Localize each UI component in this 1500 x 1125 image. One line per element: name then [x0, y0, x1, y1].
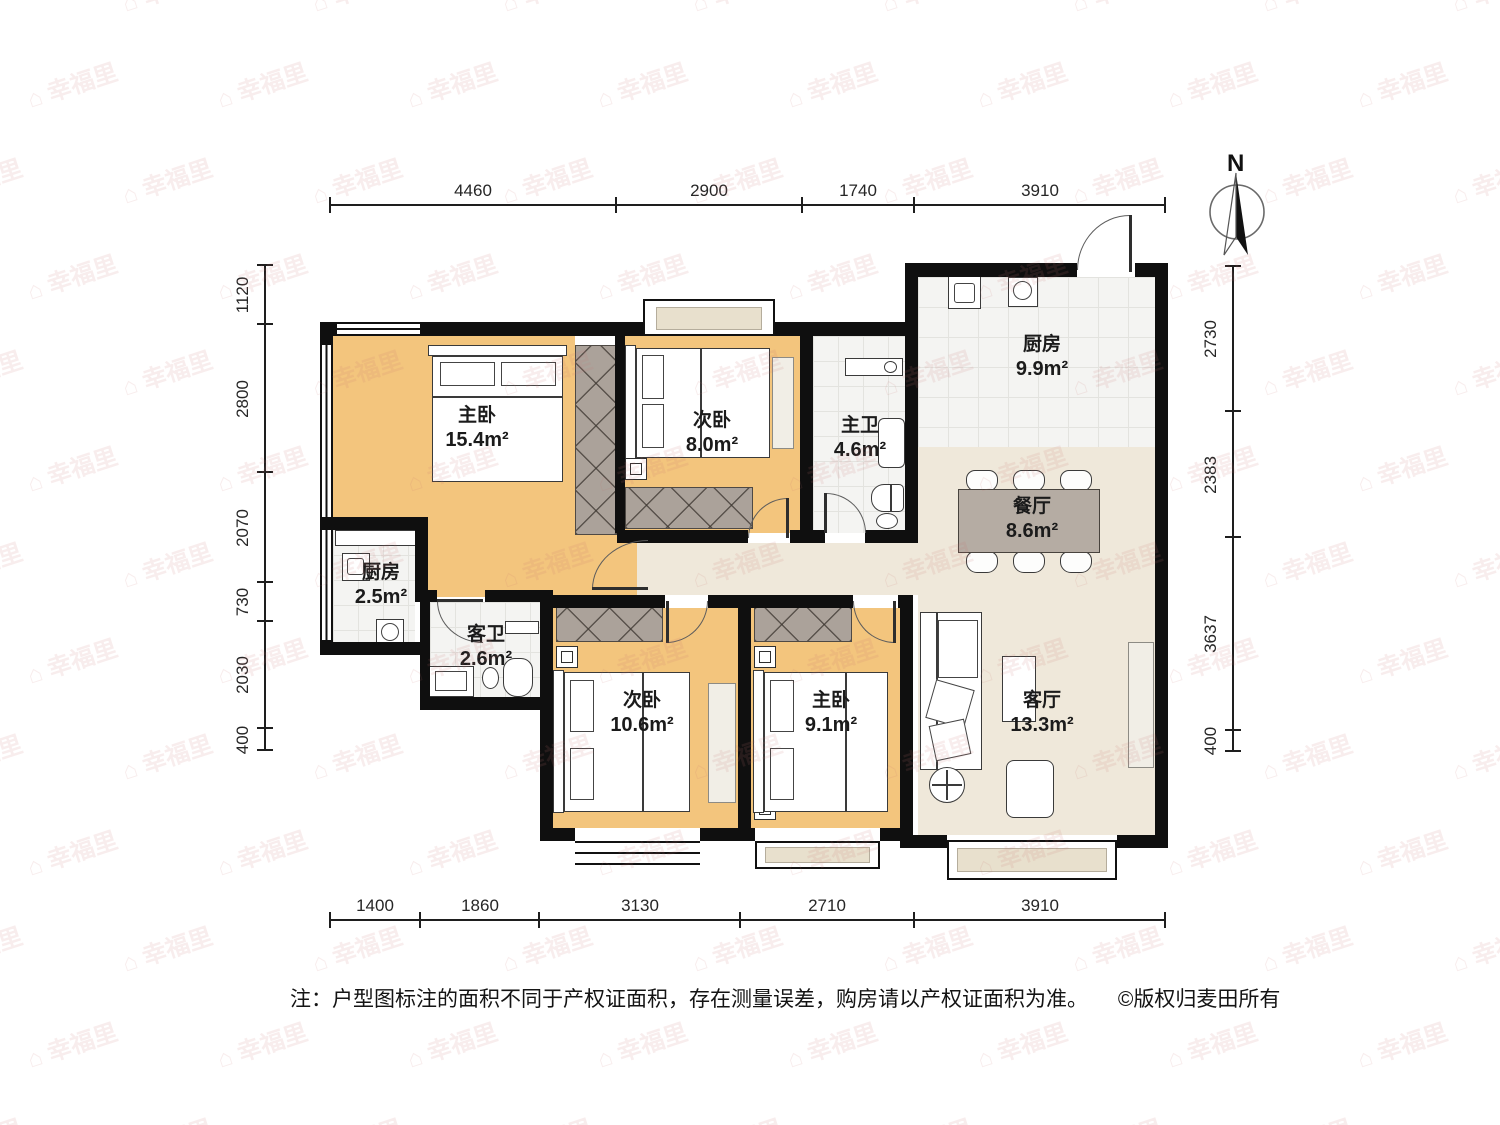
dim-label: 2383: [1201, 440, 1221, 510]
watermark: ⌂ 幸福里: [592, 52, 691, 114]
watermark: ⌂ 幸福里: [117, 916, 216, 978]
dim-label: 1740: [818, 181, 898, 201]
wall: [905, 336, 918, 543]
wall: [898, 595, 913, 608]
lamp-cross: [946, 770, 948, 800]
watermark: ⌂ 幸福里: [497, 148, 596, 210]
door-leaf: [666, 601, 669, 643]
watermark: ⌂ 幸福里: [1257, 148, 1356, 210]
washer-drum: [381, 623, 399, 641]
watermark: ⌂ 幸福里: [1257, 532, 1356, 594]
room-name: 客卫: [460, 623, 512, 646]
room-name: 厨房: [1016, 333, 1068, 356]
watermark: ⌂ 幸福里: [687, 0, 786, 19]
dim-label: 1120: [233, 260, 253, 330]
dim-tick: [257, 323, 273, 325]
wardrobe: [575, 345, 617, 535]
wall: [333, 517, 428, 530]
watermark: ⌂ 幸福里: [1067, 916, 1166, 978]
watermark: ⌂ 幸福里: [22, 52, 121, 114]
door-leaf: [437, 599, 483, 602]
wall: [428, 590, 437, 602]
window: [320, 530, 333, 640]
watermark: ⌂ 幸福里: [592, 244, 691, 306]
floor-corridor: [637, 543, 918, 595]
wall: [540, 828, 575, 841]
door-leaf: [786, 498, 789, 538]
watermark: ⌂ 幸福里: [1352, 1012, 1451, 1074]
chair-icon: [1060, 551, 1092, 573]
window-sill: [656, 307, 762, 330]
door-leaf: [592, 587, 648, 590]
dim-tick: [615, 197, 617, 213]
room-label-kitchen-small: 厨房 2.5m²: [355, 561, 407, 610]
pillow: [570, 680, 594, 732]
ac-unit-icon: [556, 646, 578, 668]
watermark: ⌂ 幸福里: [1352, 628, 1451, 690]
door-leaf: [893, 601, 896, 643]
sink-icon: [884, 361, 897, 373]
dim-tick: [801, 197, 803, 213]
room-label-bath-guest: 客卫 2.6m²: [460, 623, 512, 672]
sofa-cushion: [938, 620, 978, 678]
watermark: ⌂ 幸福里: [307, 148, 406, 210]
wardrobe: [556, 602, 663, 642]
bed-headboard: [753, 670, 764, 813]
wall: [415, 517, 428, 602]
watermark: ⌂ 幸福里: [117, 0, 216, 19]
room-label-bath-master: 主卫 4.6m²: [834, 414, 886, 463]
room-name: 主卧: [445, 404, 508, 427]
bed-headboard: [625, 345, 636, 460]
watermark: ⌂ 幸福里: [877, 0, 976, 19]
pillow: [642, 355, 664, 399]
watermark: ⌂ 幸福里: [117, 724, 216, 786]
watermark: ⌂ 幸福里: [687, 148, 786, 210]
watermark: ⌂ 幸福里: [782, 244, 881, 306]
dimension-line: [330, 204, 1165, 206]
watermark: ⌂ 幸福里: [1447, 1108, 1500, 1125]
wall: [708, 595, 853, 608]
watermark: ⌂ 幸福里: [497, 916, 596, 978]
dim-label: 1400: [335, 896, 415, 916]
watermark: ⌂ 幸福里: [1257, 724, 1356, 786]
dim-tick: [1225, 410, 1241, 412]
ac-unit-icon: [754, 646, 776, 668]
wall: [553, 595, 665, 608]
watermark: ⌂ 幸福里: [402, 244, 501, 306]
dim-tick: [1225, 536, 1241, 538]
wall: [913, 835, 947, 848]
sofa-pillow: [929, 719, 972, 762]
room-area: 10.6m²: [610, 712, 673, 738]
dimension-line: [1232, 266, 1234, 751]
bed-headboard: [553, 670, 564, 813]
dim-label: 2030: [233, 640, 253, 710]
bed-headboard: [428, 345, 567, 356]
blanket-line: [432, 396, 563, 398]
watermark: ⌂ 幸福里: [1352, 436, 1451, 498]
window: [575, 841, 700, 865]
wall: [420, 322, 643, 336]
dim-tick: [257, 727, 273, 729]
watermark: ⌂ 幸福里: [0, 1108, 26, 1125]
ac-unit-icon: [625, 458, 647, 480]
dim-label: 730: [233, 567, 253, 637]
room-label-master1: 主卧 15.4m²: [445, 404, 508, 453]
dim-label: 2900: [669, 181, 749, 201]
room-label-bed2: 次卧 8.0m²: [686, 409, 738, 458]
side-panel: [708, 683, 736, 803]
wardrobe: [754, 602, 852, 642]
room-area: 2.6m²: [460, 646, 512, 672]
watermark: ⌂ 幸福里: [212, 1012, 311, 1074]
room-area: 13.3m²: [1010, 712, 1073, 738]
dim-tick: [257, 471, 273, 473]
room-label-dining: 餐厅 8.6m²: [1006, 495, 1058, 544]
watermark: ⌂ 幸福里: [0, 532, 26, 594]
dim-tick: [1225, 750, 1241, 752]
watermark: ⌂ 幸福里: [497, 1108, 596, 1125]
watermark: ⌂ 幸福里: [117, 1108, 216, 1125]
watermark: ⌂ 幸福里: [307, 0, 406, 19]
footer-note: 注：户型图标注的面积不同于产权证面积，存在测量误差，购房请以产权证面积为准。 ©…: [290, 983, 1280, 1013]
door-leaf: [824, 493, 827, 533]
dim-tick: [419, 912, 421, 928]
chair-icon: [966, 551, 998, 573]
door-arc: [1077, 215, 1130, 270]
watermark: ⌂ 幸福里: [1352, 52, 1451, 114]
dim-label: 3637: [1201, 599, 1221, 669]
watermark: ⌂ 幸福里: [1352, 244, 1451, 306]
watermark: ⌂ 幸福里: [0, 916, 26, 978]
watermark: ⌂ 幸福里: [212, 628, 311, 690]
dim-tick: [739, 912, 741, 928]
chair-icon: [1013, 551, 1045, 573]
dim-tick: [257, 620, 273, 622]
dim-tick: [257, 749, 273, 751]
room-area: 9.9m²: [1016, 356, 1068, 382]
room-area: 8.6m²: [1006, 518, 1058, 544]
watermark: ⌂ 幸福里: [212, 820, 311, 882]
copyright-text: ©版权归麦田所有: [1118, 988, 1280, 1011]
washbasin-inner: [435, 671, 467, 691]
wall: [905, 263, 1077, 277]
watermark: ⌂ 幸福里: [117, 532, 216, 594]
tv-cabinet: [1128, 642, 1154, 768]
watermark: ⌂ 幸福里: [22, 820, 121, 882]
watermark: ⌂ 幸福里: [212, 52, 311, 114]
toilet-icon: [871, 484, 904, 512]
dim-tick: [329, 912, 331, 928]
dim-label: 3130: [600, 896, 680, 916]
disclaimer-text: 注：户型图标注的面积不同于产权证面积，存在测量误差，购房请以产权证面积为准。: [290, 988, 1088, 1011]
watermark: ⌂ 幸福里: [1352, 820, 1451, 882]
watermark: ⌂ 幸福里: [1162, 52, 1261, 114]
watermark: ⌂ 幸福里: [117, 340, 216, 402]
watermark: ⌂ 幸福里: [22, 1012, 121, 1074]
pillow: [440, 362, 495, 386]
watermark: ⌂ 幸福里: [877, 1108, 976, 1125]
dim-label: 2710: [787, 896, 867, 916]
watermark: ⌂ 幸福里: [1257, 1108, 1356, 1125]
watermark: ⌂ 幸福里: [212, 244, 311, 306]
toilet-tank-line: [890, 485, 892, 511]
room-name: 次卧: [610, 689, 673, 712]
room-name: 餐厅: [1006, 495, 1058, 518]
dim-label: 2800: [233, 364, 253, 434]
watermark: ⌂ 幸福里: [972, 52, 1071, 114]
room-name: 厨房: [355, 561, 407, 584]
watermark: ⌂ 幸福里: [1447, 0, 1500, 19]
watermark: ⌂ 幸福里: [307, 916, 406, 978]
dim-label: 1860: [440, 896, 520, 916]
watermark: ⌂ 幸福里: [1067, 0, 1166, 19]
dim-tick: [257, 581, 273, 583]
watermark: ⌂ 幸福里: [877, 916, 976, 978]
dim-label: 3910: [1000, 896, 1080, 916]
watermark: ⌂ 幸福里: [0, 0, 26, 19]
wall: [800, 336, 813, 533]
pillow: [501, 362, 556, 386]
ottoman: [1006, 760, 1054, 818]
wall: [615, 336, 625, 533]
room-name: 主卧: [805, 689, 857, 712]
dim-tick: [1225, 265, 1241, 267]
wall: [738, 595, 751, 841]
dimension-line: [264, 265, 266, 750]
watermark: ⌂ 幸福里: [1067, 1108, 1166, 1125]
wall: [420, 597, 430, 710]
door-leaf: [1129, 215, 1132, 272]
watermark: ⌂ 幸福里: [22, 244, 121, 306]
watermark: ⌂ 幸福里: [402, 52, 501, 114]
dim-tick: [913, 197, 915, 213]
watermark: ⌂ 幸福里: [1162, 1012, 1261, 1074]
watermark: ⌂ 幸福里: [1257, 916, 1356, 978]
watermark: ⌂ 幸福里: [592, 1012, 691, 1074]
dim-label: 400: [1201, 706, 1221, 776]
watermark: ⌂ 幸福里: [1257, 340, 1356, 402]
wall: [420, 697, 553, 710]
room-label-master2: 主卧 9.1m²: [805, 689, 857, 738]
pillow: [770, 680, 794, 732]
room-area: 4.6m²: [834, 437, 886, 463]
drain-icon: [876, 513, 898, 529]
dim-tick: [913, 912, 915, 928]
dim-tick: [1164, 197, 1166, 213]
dim-label: 2730: [1201, 304, 1221, 374]
room-area: 2.5m²: [355, 584, 407, 610]
dim-label: 3910: [1000, 181, 1080, 201]
wall: [900, 595, 913, 848]
room-name: 主卫: [834, 414, 886, 437]
compass-icon: [1205, 165, 1269, 263]
dim-tick: [257, 264, 273, 266]
dim-tick: [329, 197, 331, 213]
room-name: 客厅: [1010, 689, 1073, 712]
kitchen-sink-basin: [954, 283, 975, 303]
watermark: ⌂ 幸福里: [22, 628, 121, 690]
watermark: ⌂ 幸福里: [687, 916, 786, 978]
room-area: 8.0m²: [686, 432, 738, 458]
watermark: ⌂ 幸福里: [687, 1108, 786, 1125]
watermark: ⌂ 幸福里: [0, 148, 26, 210]
room-label-kitchen-big: 厨房 9.9m²: [1016, 333, 1068, 382]
watermark: ⌂ 幸福里: [1257, 0, 1356, 19]
floor-plan-page: 主卧 15.4m² 次卧 8.0m² 主卫 4.6m² 厨房 9.9m² 餐厅 …: [0, 0, 1500, 1125]
wall: [775, 322, 918, 336]
room-area: 15.4m²: [445, 427, 508, 453]
watermark: ⌂ 幸福里: [0, 340, 26, 402]
dim-label: 4460: [433, 181, 513, 201]
watermark: ⌂ 幸福里: [117, 148, 216, 210]
watermark: ⌂ 幸福里: [497, 0, 596, 19]
dimension-line: [330, 919, 1165, 921]
watermark: ⌂ 幸福里: [212, 436, 311, 498]
dim-tick: [538, 912, 540, 928]
watermark: ⌂ 幸福里: [307, 724, 406, 786]
watermark: ⌂ 幸福里: [1447, 724, 1500, 786]
watermark: ⌂ 幸福里: [1067, 148, 1166, 210]
wall: [320, 642, 428, 655]
window-sill: [957, 848, 1107, 872]
room-name: 次卧: [686, 409, 738, 432]
room-label-living: 客厅 13.3m²: [1010, 689, 1073, 738]
pillow: [642, 404, 664, 448]
pillow: [570, 748, 594, 800]
dim-tick: [1225, 729, 1241, 731]
wall: [1155, 263, 1168, 848]
watermark: ⌂ 幸福里: [402, 1012, 501, 1074]
watermark: ⌂ 幸福里: [877, 148, 976, 210]
room-label-bed3: 次卧 10.6m²: [610, 689, 673, 738]
dim-label: 400: [233, 705, 253, 775]
dim-label: 2070: [233, 493, 253, 563]
kitchen-counter: [335, 530, 417, 546]
watermark: ⌂ 幸福里: [782, 52, 881, 114]
watermark: ⌂ 幸福里: [307, 1108, 406, 1125]
watermark: ⌂ 幸福里: [972, 1012, 1071, 1074]
wall: [540, 597, 553, 841]
window: [320, 345, 333, 517]
watermark: ⌂ 幸福里: [1447, 916, 1500, 978]
watermark: ⌂ 幸福里: [1447, 340, 1500, 402]
dim-tick: [1164, 912, 1166, 928]
pillow: [770, 748, 794, 800]
room-area: 9.1m²: [805, 712, 857, 738]
stove-burner: [1013, 281, 1032, 300]
watermark: ⌂ 幸福里: [0, 724, 26, 786]
wardrobe: [625, 487, 753, 529]
watermark: ⌂ 幸福里: [1447, 148, 1500, 210]
side-panel: [772, 357, 794, 449]
watermark: ⌂ 幸福里: [22, 436, 121, 498]
window: [337, 322, 420, 336]
wall: [1117, 835, 1168, 848]
watermark: ⌂ 幸福里: [1162, 820, 1261, 882]
watermark: ⌂ 幸福里: [402, 820, 501, 882]
window-sill: [765, 847, 870, 863]
watermark: ⌂ 幸福里: [782, 1012, 881, 1074]
watermark: ⌂ 幸福里: [1447, 532, 1500, 594]
